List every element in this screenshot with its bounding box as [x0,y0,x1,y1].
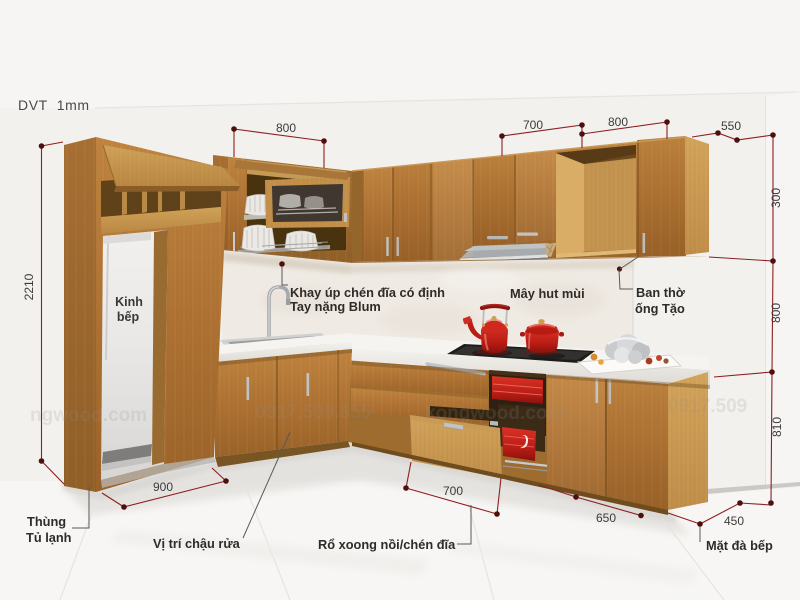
svg-text:Tủ lạnh: Tủ lạnh [26,530,72,545]
svg-text:700: 700 [443,484,463,498]
svg-text:810: 810 [770,417,784,437]
svg-text:Ban thờ: Ban thờ [636,285,686,300]
svg-text:300: 300 [769,188,783,208]
svg-text:800: 800 [769,303,783,323]
svg-text:0917.509: 0917.509 [668,396,747,417]
svg-text:650: 650 [596,511,616,525]
svg-text:550: 550 [721,119,741,133]
svg-text:Mây hut mùi: Mây hut mùi [510,286,585,301]
svg-text:900: 900 [153,480,173,494]
svg-text:Kinh: Kinh [115,295,143,309]
svg-text:Vị trí chậu rửa: Vị trí chậu rửa [153,536,241,551]
svg-text:bếp: bếp [117,310,140,324]
svg-text:kongwood.com: kongwood.com [425,403,564,424]
svg-text:Tay nặng Blum: Tay nặng Blum [290,299,381,314]
svg-text:Thùng: Thùng [27,514,66,529]
svg-text:Mặt đà bếp: Mặt đà bếp [706,538,773,553]
svg-text:DVT 1mm: DVT 1mm [18,97,90,113]
svg-text:800: 800 [608,115,628,129]
svg-text:Rổ xoong nồi/chén đĩa: Rổ xoong nồi/chén đĩa [318,537,456,552]
svg-text:800: 800 [276,121,296,135]
svg-text:2210: 2210 [22,273,36,300]
svg-text:450: 450 [724,514,744,528]
svg-text:700: 700 [523,118,543,132]
svg-text:ngwood.com: ngwood.com [30,405,147,426]
svg-text:ống Tặo: ống Tặo [635,301,685,316]
svg-text:0917.509.855: 0917.509.855 [255,402,372,423]
svg-text:Khay úp chén đĩa có định: Khay úp chén đĩa có định [290,285,445,300]
